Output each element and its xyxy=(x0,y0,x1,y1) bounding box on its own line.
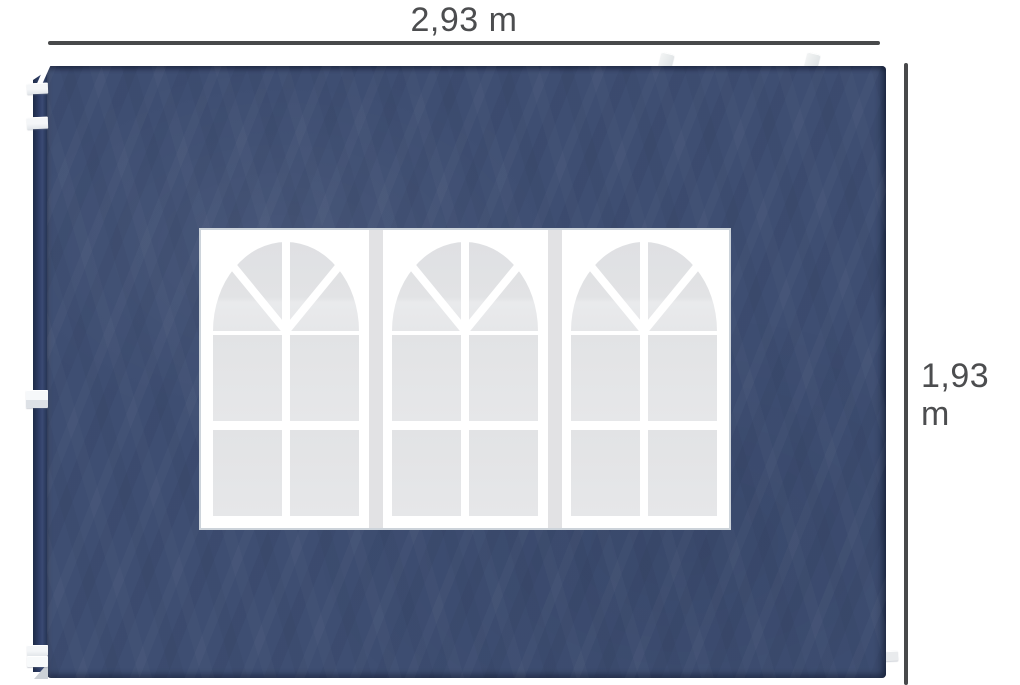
attachment-tab-left-middle xyxy=(26,390,48,408)
height-dimension-line xyxy=(904,63,908,685)
fanlight-arch xyxy=(213,242,359,331)
window-unit xyxy=(392,242,538,516)
attachment-tab-left-2 xyxy=(27,117,48,130)
window-pane-grid xyxy=(392,335,538,516)
width-dimension-label: 2,93 m xyxy=(48,1,880,39)
sidewall-panel xyxy=(47,66,886,678)
product-image-canvas: 2,93 m 1,93 m xyxy=(0,0,1020,685)
window-pane xyxy=(469,335,538,421)
window-pane xyxy=(290,430,359,516)
attachment-tab-left-1 xyxy=(27,83,48,95)
window-pane xyxy=(571,335,640,421)
window-pane xyxy=(392,430,461,516)
window-divider xyxy=(548,230,562,528)
window-pane xyxy=(392,335,461,421)
window-pane xyxy=(213,335,282,421)
attachment-tab-left-bottom-1 xyxy=(27,645,48,656)
window-pane xyxy=(290,335,359,421)
window-divider xyxy=(369,230,383,528)
window-pane xyxy=(571,430,640,516)
height-dimension-label: 1,93 m xyxy=(921,357,1020,433)
panel-left-edge-fold xyxy=(33,70,48,672)
attachment-tab-left-bottom-2 xyxy=(27,656,48,667)
window-pane-grid xyxy=(571,335,717,516)
width-dimension-line xyxy=(48,41,880,45)
window-pane xyxy=(648,335,717,421)
window-pane xyxy=(469,430,538,516)
window-pane-grid xyxy=(213,335,359,516)
fanlight-arch xyxy=(571,242,717,331)
window-unit xyxy=(571,242,717,516)
window-pane xyxy=(213,430,282,516)
window-unit xyxy=(213,242,359,516)
window-pane xyxy=(648,430,717,516)
fanlight-arch xyxy=(392,242,538,331)
window-panel xyxy=(199,228,731,530)
